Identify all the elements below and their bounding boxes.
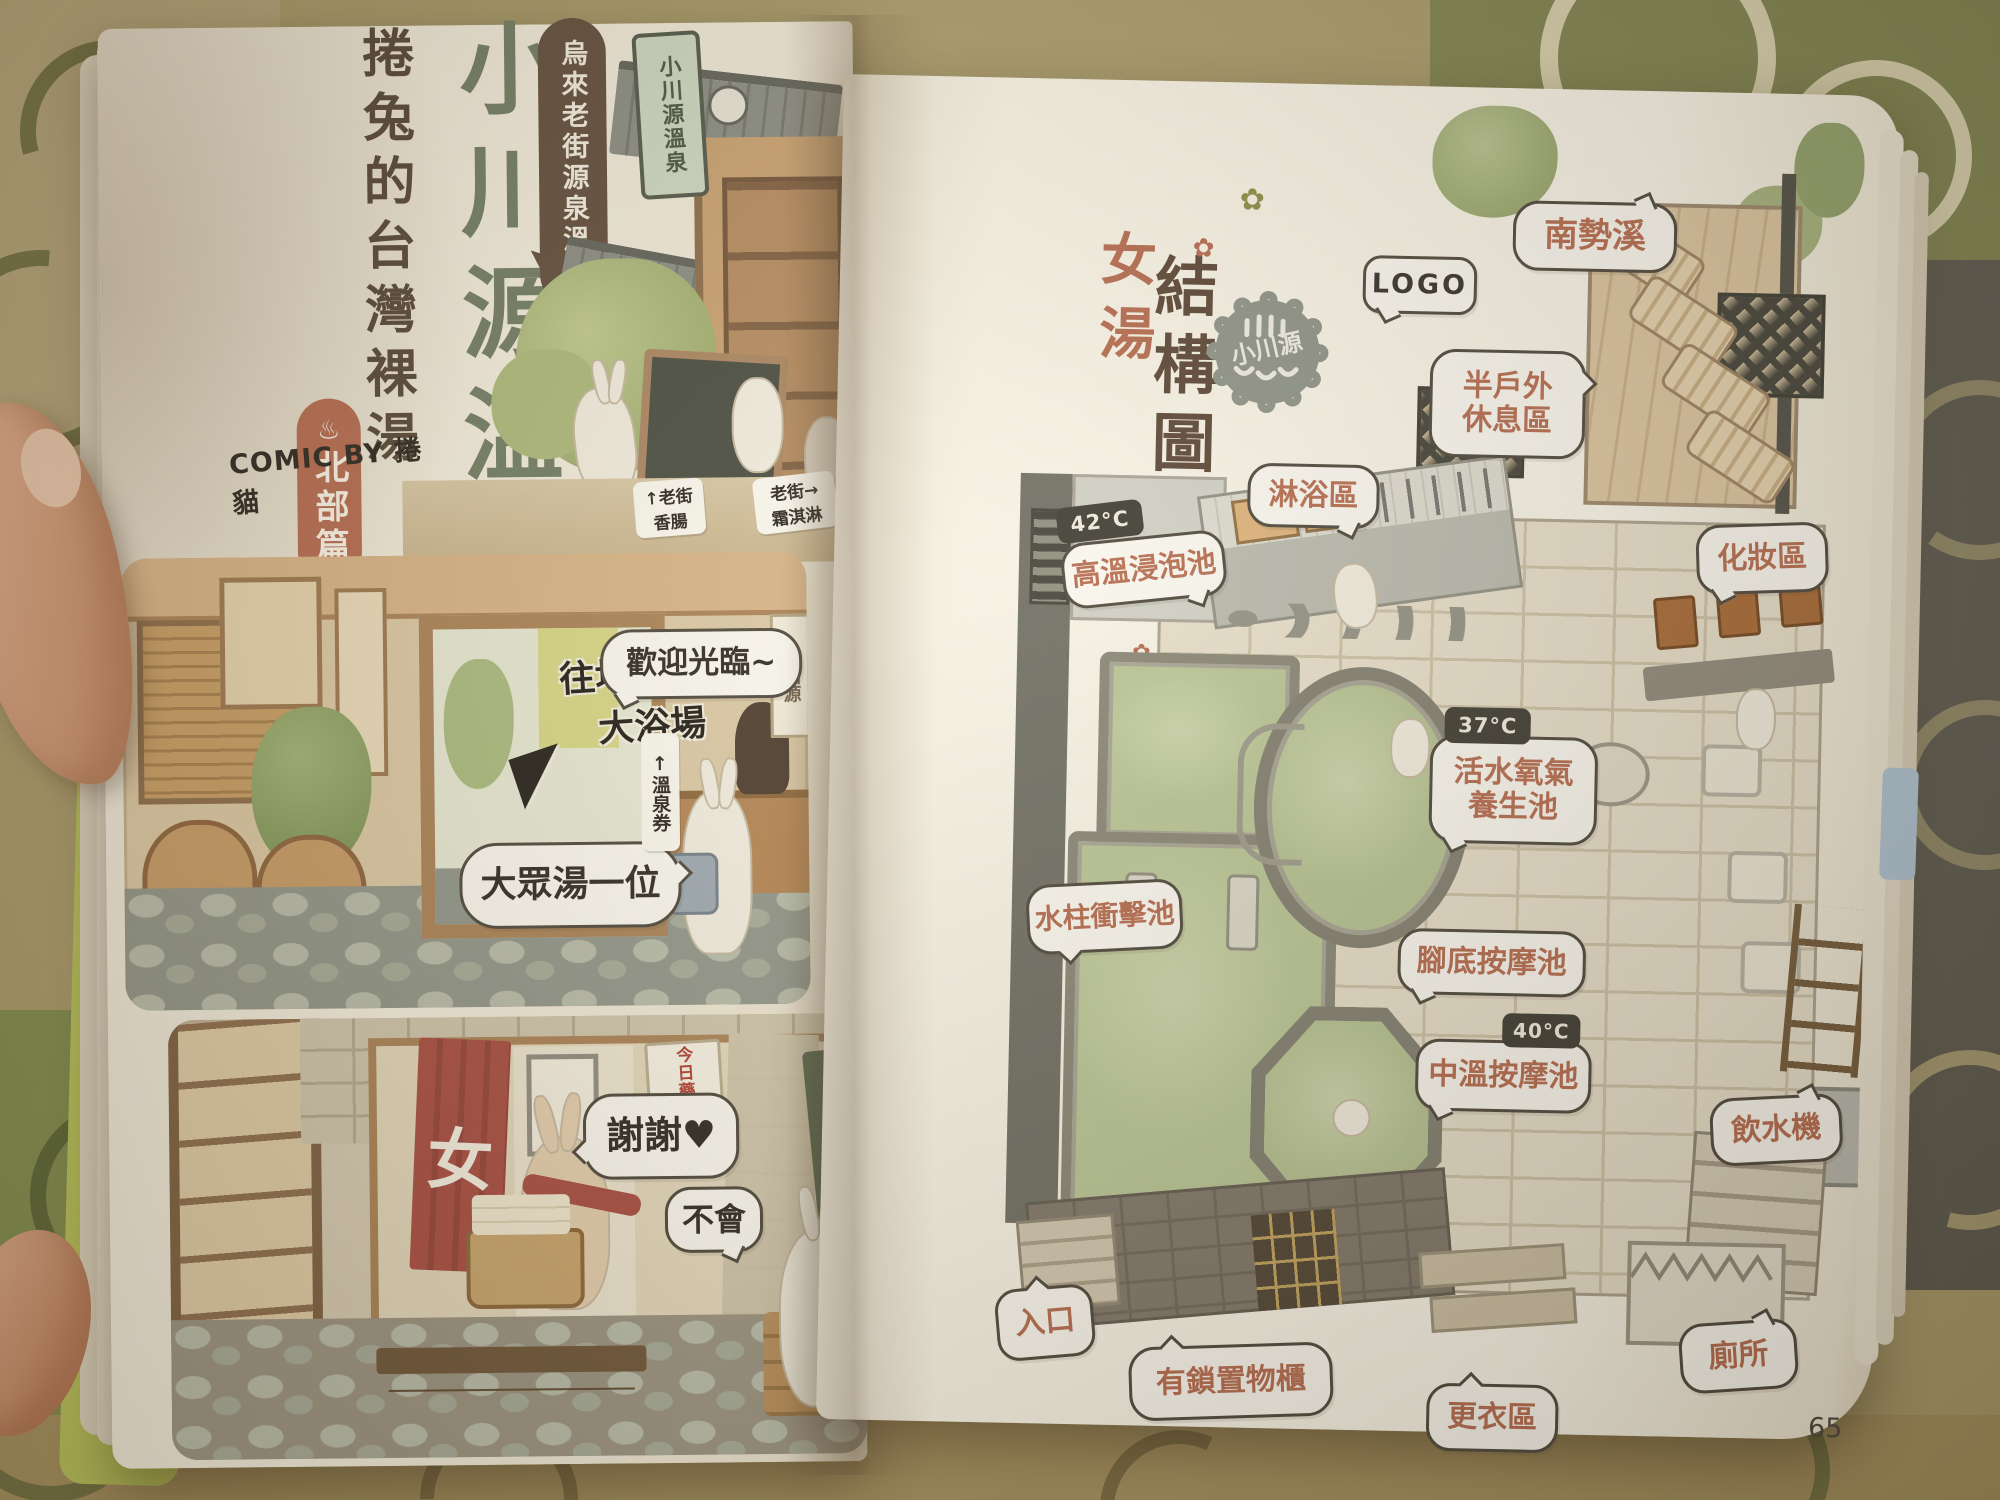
wooden-bench (376, 1345, 646, 1374)
women-curtain-text: 女 (425, 1106, 495, 1205)
street-scene-illustration: 小川源溫泉 溫泉 300 ↑老街 香腸 老街→ 霜淇淋 (397, 16, 858, 566)
rabbit (1735, 688, 1776, 751)
white-chair (1701, 744, 1762, 797)
jet-column (1226, 874, 1260, 951)
label-oxygen-wellness-pool: 活水氧氣 養生池 (1428, 735, 1598, 846)
building-sign: 小川源溫泉 (631, 30, 709, 200)
tub-handrail (1236, 723, 1305, 866)
vanity-chair (1653, 595, 1699, 650)
reply-speech-bubble: 不會 (665, 1186, 764, 1253)
photo-of-open-book: 捲兔的台灣裸湯 小川源溫泉 ♨ 北部篇 COMIC BY 捲貓 烏來老街源泉溫泉 (0, 0, 2000, 1500)
roof-emblem (708, 85, 748, 125)
label-entrance: 入口 (993, 1283, 1097, 1363)
label-toilet: 廁所 (1677, 1317, 1799, 1395)
label-mid-pool-temperature: 40°C (1502, 1013, 1581, 1049)
right-page: 女湯 結構圖 (816, 74, 1899, 1441)
page-number: 65 (1808, 1413, 1843, 1445)
rabbit (731, 377, 784, 474)
ticket-label-text: ↑溫泉券 (647, 752, 675, 831)
label-changing-area: 更衣區 (1426, 1383, 1559, 1454)
bathhouse-map (816, 74, 1899, 1441)
locker-block (1251, 1208, 1343, 1311)
comic-panel-entrance: 女 今日藥湯 男 (168, 1013, 868, 1460)
bookmark-tab (1879, 767, 1919, 880)
folded-towels (472, 1194, 570, 1235)
label-semi-outdoor-rest-area: 半戶外 休息區 (1428, 348, 1586, 459)
white-chair (1727, 851, 1788, 904)
open-book: 捲兔的台灣裸湯 小川源溫泉 ♨ 北部篇 COMIC BY 捲貓 烏來老街源泉溫泉 (95, 0, 1940, 1500)
label-river: 南勢溪 (1512, 200, 1677, 273)
label-water-jet-pool: 水柱衝擊池 (1025, 878, 1184, 956)
label-shower-area: 淋浴區 (1247, 463, 1380, 530)
ticket-label: ↑溫泉券 (641, 733, 680, 851)
label-makeup-area: 化妝區 (1695, 521, 1829, 595)
label-mid-temp-massage-pool: 中溫按摩池 (1415, 1038, 1592, 1114)
comic-panel-lobby: 小川源 往地下一樓 大浴場 歡迎光臨~ 大眾湯一位 ↑溫泉券 (121, 552, 811, 1011)
left-page: 捲兔的台灣裸湯 小川源溫泉 ♨ 北部篇 COMIC BY 捲貓 烏來老街源泉溫泉 (97, 21, 867, 1469)
wall-notice-board (219, 577, 322, 710)
towel-ladder-rack (1780, 904, 1873, 1078)
sign-sausage: ↑老街 香腸 (632, 477, 706, 538)
label-lockers: 有鎖置物櫃 (1128, 1341, 1334, 1421)
building-sign-text: 小川源溫泉 (651, 54, 690, 176)
label-foot-massage-pool: 腳底按摩池 (1397, 928, 1586, 998)
rabbit (1390, 718, 1431, 779)
towel-basket (466, 1228, 585, 1309)
river-foliage (1793, 122, 1865, 218)
welcome-speech-bubble: 歡迎光臨~ (600, 628, 803, 700)
sign-ice-cream: 老街→ 霜淇淋 (752, 470, 840, 535)
label-oxygen-pool-temperature: 37°C (1444, 707, 1531, 745)
thanks-speech-bubble: 謝謝♥ (583, 1092, 740, 1180)
order-speech-bubble: 大眾湯一位 (459, 841, 682, 929)
label-drinking-fountain: 飲水機 (1709, 1093, 1844, 1167)
